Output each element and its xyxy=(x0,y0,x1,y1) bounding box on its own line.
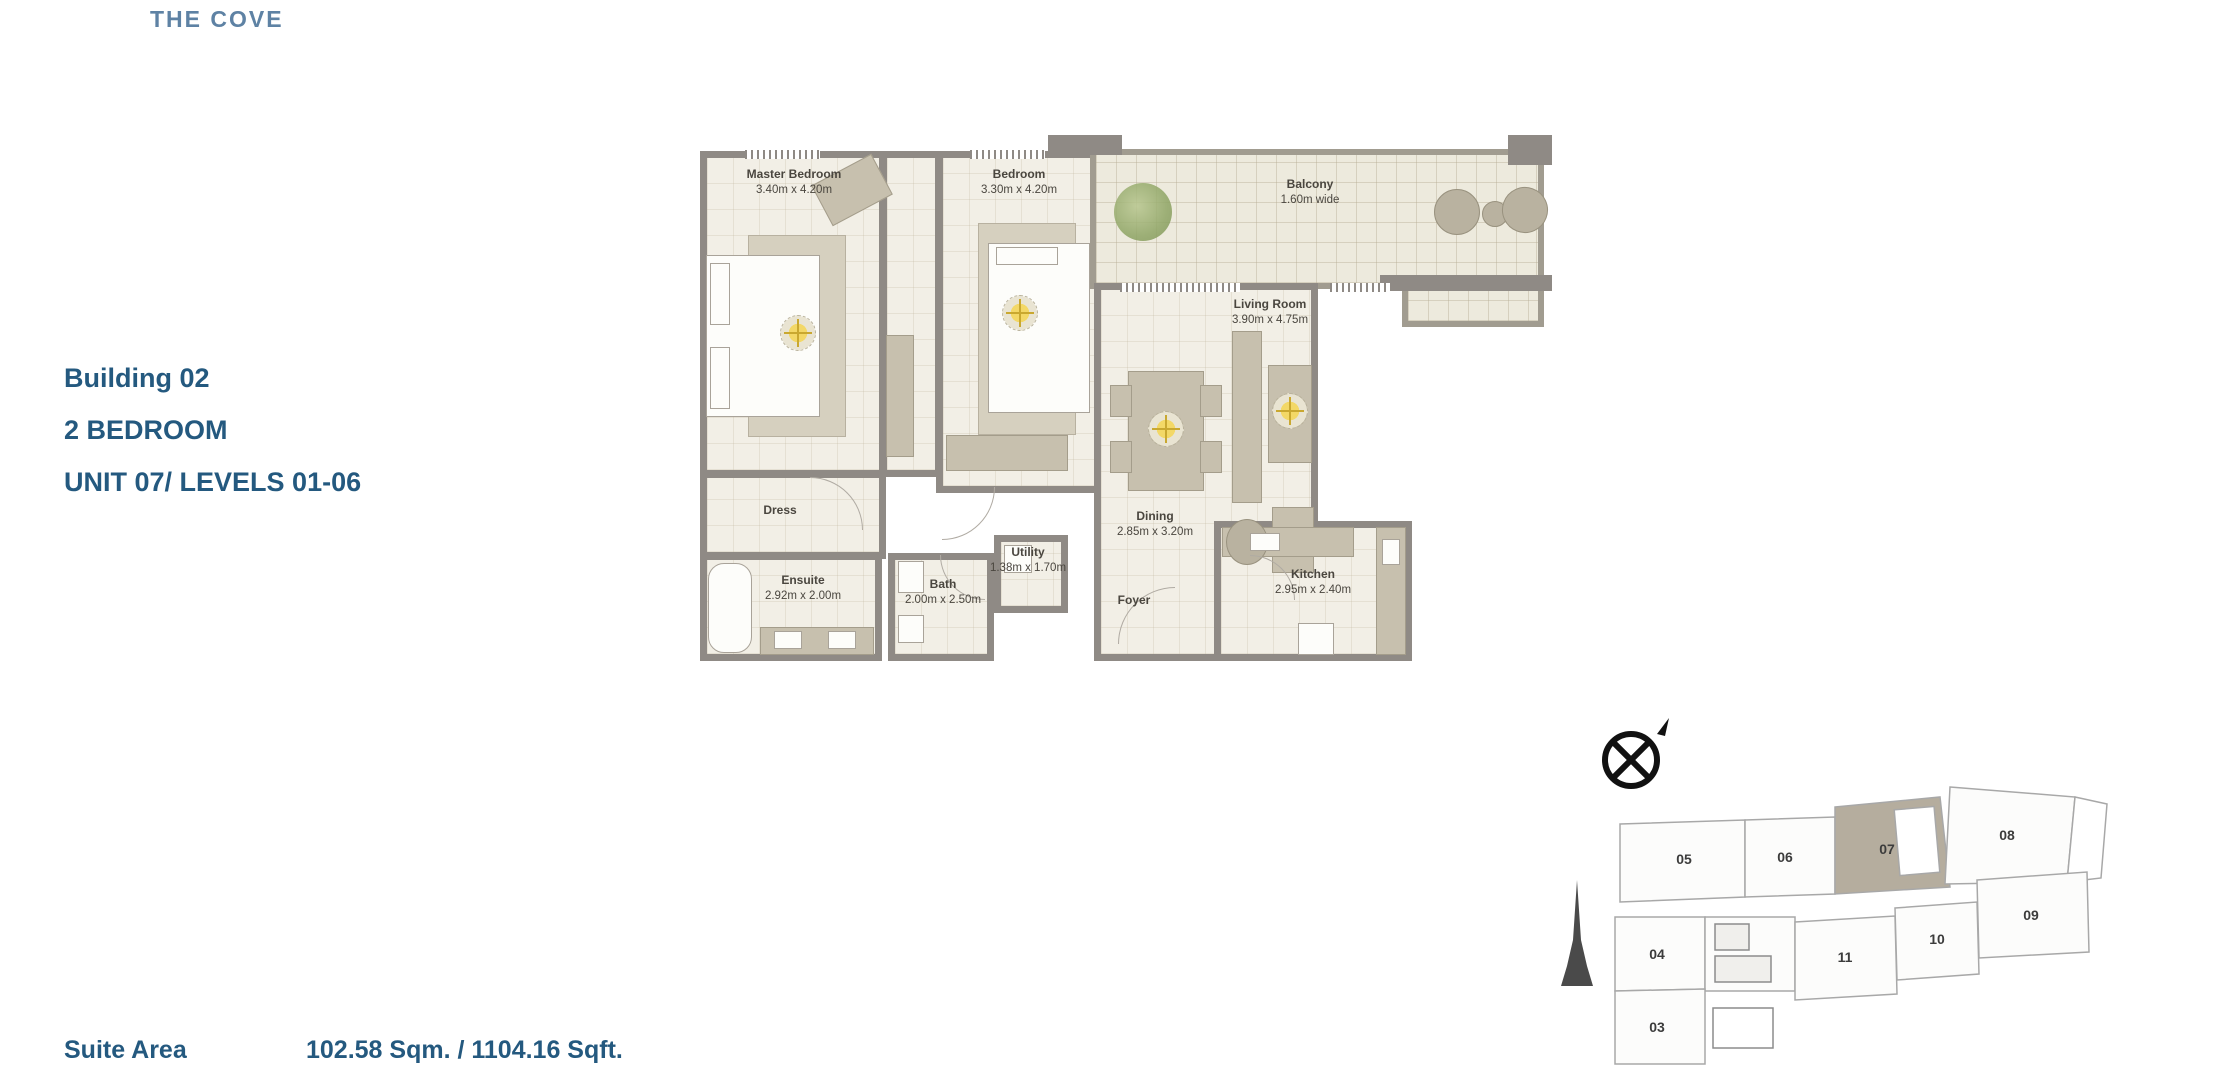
master-pillow xyxy=(710,347,730,409)
room-label-living: Living Room 3.90m x 4.75m xyxy=(1210,297,1330,328)
door-arc xyxy=(942,487,995,540)
room-dims: 2.95m x 2.40m xyxy=(1275,584,1351,596)
room-dims: 1.60m wide xyxy=(1281,194,1340,206)
room-name: Dress xyxy=(763,503,796,517)
keyplan-core-room xyxy=(1713,1008,1773,1048)
room-label-ensuite: Ensuite 2.92m x 2.00m xyxy=(738,573,868,604)
dining-chair xyxy=(1110,441,1132,473)
suite-area-value: 102.58 Sqm. / 1104.16 Sqft. xyxy=(306,1036,623,1065)
unit-info-block: Building 02 2 BEDROOM UNIT 07/ LEVELS 01… xyxy=(64,352,361,508)
room-dims: 3.40m x 4.20m xyxy=(756,184,832,196)
room-label-foyer: Foyer xyxy=(1094,593,1174,608)
keyplan-unit-number: 03 xyxy=(1649,1019,1665,1035)
room-dims: 2.00m x 2.50m xyxy=(905,594,981,606)
bedroom-pillow xyxy=(996,247,1058,265)
bath-basin xyxy=(898,615,924,643)
keyplan-core-room xyxy=(1715,924,1749,950)
ceiling-light-icon xyxy=(1148,411,1184,447)
room-name: Dining xyxy=(1136,509,1173,523)
room-name: Living Room xyxy=(1234,297,1307,311)
suite-area-label: Suite Area xyxy=(64,1036,187,1065)
kitchen-hob xyxy=(1250,533,1280,551)
ceiling-light-icon xyxy=(1272,393,1308,429)
keyplan-unit-number: 07 xyxy=(1879,841,1895,857)
room-label-bath: Bath 2.00m x 2.50m xyxy=(898,577,988,608)
keyplan-unit-number: 10 xyxy=(1929,931,1945,947)
room-dims: 1.38m x 1.70m xyxy=(990,562,1066,574)
keyplan-unit-number: 06 xyxy=(1777,849,1793,865)
keyplan-core xyxy=(1894,806,1940,875)
unit-type-label: 2 BEDROOM xyxy=(64,404,361,456)
plant-icon xyxy=(1114,183,1172,241)
window-hatch xyxy=(1330,283,1390,292)
ensuite-basin xyxy=(774,631,802,649)
window-hatch xyxy=(1120,283,1240,292)
column-block xyxy=(1048,135,1122,155)
dining-chair xyxy=(1110,385,1132,417)
unit-levels-label: UNIT 07/ LEVELS 01-06 xyxy=(64,456,361,508)
ensuite-basin xyxy=(828,631,856,649)
dining-chair xyxy=(1200,441,1222,473)
living-sofa xyxy=(1232,331,1262,503)
page: THE COVE Building 02 2 BEDROOM UNIT 07/ … xyxy=(0,0,2220,1080)
room-name: Kitchen xyxy=(1291,567,1335,581)
keyplan-core-room xyxy=(1715,956,1771,982)
room-name: Bath xyxy=(930,577,957,591)
room-name: Foyer xyxy=(1118,593,1151,607)
kitchen-sink xyxy=(1382,539,1400,565)
room-label-dining: Dining 2.85m x 3.20m xyxy=(1090,509,1220,540)
room-label-bedroom: Bedroom 3.30m x 4.20m xyxy=(946,167,1092,198)
building-label: Building 02 xyxy=(64,352,361,404)
room-name: Ensuite xyxy=(781,573,824,587)
keyplan-unit-number: 05 xyxy=(1676,851,1692,867)
bedroom-wardrobe xyxy=(946,435,1068,471)
bedroom-bed xyxy=(988,243,1090,413)
room-label-kitchen: Kitchen 2.95m x 2.40m xyxy=(1248,567,1378,598)
master-wardrobe xyxy=(886,335,914,457)
room-label-dress: Dress xyxy=(740,503,820,518)
room-label-utility: Utility 1.38m x 1.70m xyxy=(968,545,1088,576)
keyplan-unit-number: 11 xyxy=(1838,949,1853,965)
room-label-balcony: Balcony 1.60m wide xyxy=(1230,177,1390,208)
ceiling-light-icon xyxy=(1002,295,1038,331)
ceiling-light-icon xyxy=(780,315,816,351)
room-name: Bedroom xyxy=(993,167,1046,181)
room-name: Balcony xyxy=(1287,177,1334,191)
room-name: Master Bedroom xyxy=(747,167,842,181)
balcony-chair xyxy=(1434,189,1480,235)
room-name: Utility xyxy=(1011,545,1044,559)
north-arrow-icon xyxy=(1657,718,1669,736)
floor-plan: Master Bedroom 3.40m x 4.20m Bedroom 3.3… xyxy=(690,135,1552,667)
kitchen-fridge xyxy=(1298,623,1334,655)
keyplan-unit-number: 04 xyxy=(1649,946,1665,962)
keyplan-unit-number: 08 xyxy=(1999,827,2015,843)
room-dims: 2.85m x 3.20m xyxy=(1117,526,1193,538)
page-title: THE COVE xyxy=(150,6,284,33)
room-dims: 3.30m x 4.20m xyxy=(981,184,1057,196)
dining-chair xyxy=(1200,385,1222,417)
column-block xyxy=(1508,135,1552,165)
key-plan: 05 06 07 08 09 10 11 04 03 xyxy=(1545,712,2185,1080)
tower-icon xyxy=(1561,880,1593,986)
compass-icon xyxy=(1605,718,1669,786)
keyplan-unit-number: 09 xyxy=(2023,907,2039,923)
master-pillow xyxy=(710,263,730,325)
room-label-master: Master Bedroom 3.40m x 4.20m xyxy=(714,167,874,198)
column-block xyxy=(1380,275,1552,291)
room-dims: 3.90m x 4.75m xyxy=(1232,314,1308,326)
window-hatch xyxy=(970,150,1045,159)
window-hatch xyxy=(745,150,820,159)
room-dims: 2.92m x 2.00m xyxy=(765,590,841,602)
